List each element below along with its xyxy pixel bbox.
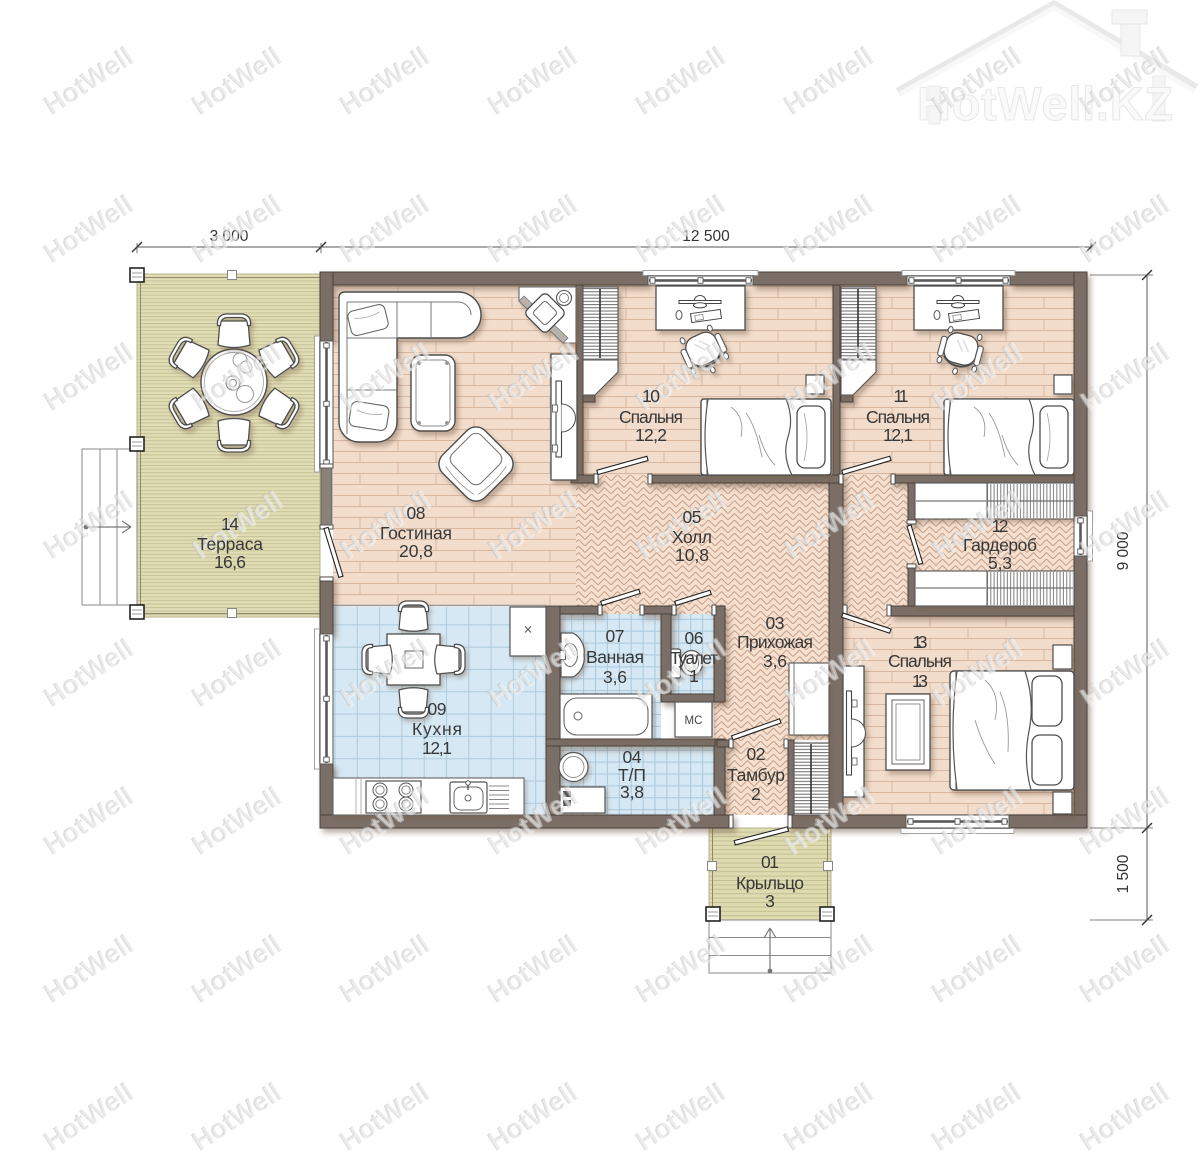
svg-text:16,6: 16,6 xyxy=(214,552,246,572)
svg-text:Гостиная: Гостиная xyxy=(380,523,452,543)
svg-text:01: 01 xyxy=(761,852,779,872)
svg-text:Гардероб: Гардероб xyxy=(963,535,1037,555)
svg-text:04: 04 xyxy=(623,747,642,767)
svg-text:Прихожая: Прихожая xyxy=(737,632,813,652)
svg-text:12,1: 12,1 xyxy=(883,425,913,445)
svg-text:12,2: 12,2 xyxy=(635,425,667,445)
svg-text:Спальня: Спальня xyxy=(866,407,930,427)
svg-text:3: 3 xyxy=(765,891,775,911)
svg-text:07: 07 xyxy=(606,626,625,646)
svg-text:06: 06 xyxy=(685,628,704,648)
svg-text:3,8: 3,8 xyxy=(620,782,644,802)
svg-text:08: 08 xyxy=(407,503,426,523)
svg-text:Ванная: Ванная xyxy=(586,647,644,667)
svg-text:9 000: 9 000 xyxy=(1115,531,1132,570)
svg-text:02: 02 xyxy=(747,744,766,764)
svg-text:3,6: 3,6 xyxy=(603,667,627,687)
svg-text:Спальня: Спальня xyxy=(888,651,952,671)
svg-text:МС: МС xyxy=(685,715,703,727)
svg-text:03: 03 xyxy=(766,613,785,633)
svg-text:09: 09 xyxy=(428,699,447,719)
svg-text:Холл: Холл xyxy=(672,527,712,547)
svg-text:20,8: 20,8 xyxy=(399,541,433,561)
svg-text:3,6: 3,6 xyxy=(763,651,787,671)
svg-text:Туалет: Туалет xyxy=(670,648,718,668)
svg-text:05: 05 xyxy=(683,507,702,527)
svg-text:Крыльцо: Крыльцо xyxy=(736,873,804,893)
svg-text:12: 12 xyxy=(992,516,1009,536)
svg-text:Спальня: Спальня xyxy=(619,407,683,427)
svg-text:12,1: 12,1 xyxy=(422,738,452,758)
svg-text:3 000: 3 000 xyxy=(210,228,249,245)
svg-text:14: 14 xyxy=(221,514,239,534)
svg-text:12 500: 12 500 xyxy=(682,228,730,245)
svg-text:2: 2 xyxy=(751,784,761,804)
svg-text:10,8: 10,8 xyxy=(675,545,709,565)
svg-text:Терраса: Терраса xyxy=(197,534,263,554)
svg-text:13: 13 xyxy=(912,671,928,691)
svg-text:5,3: 5,3 xyxy=(988,553,1012,573)
svg-text:Тамбур: Тамбур xyxy=(727,765,785,785)
svg-text:1: 1 xyxy=(689,666,699,686)
svg-text:HotWell.KZ: HotWell.KZ xyxy=(917,77,1173,130)
svg-text:13: 13 xyxy=(913,632,928,652)
svg-text:Кухня: Кухня xyxy=(412,719,462,739)
svg-text:11: 11 xyxy=(894,386,909,406)
svg-text:1 500: 1 500 xyxy=(1115,854,1132,893)
svg-text:10: 10 xyxy=(642,386,660,406)
